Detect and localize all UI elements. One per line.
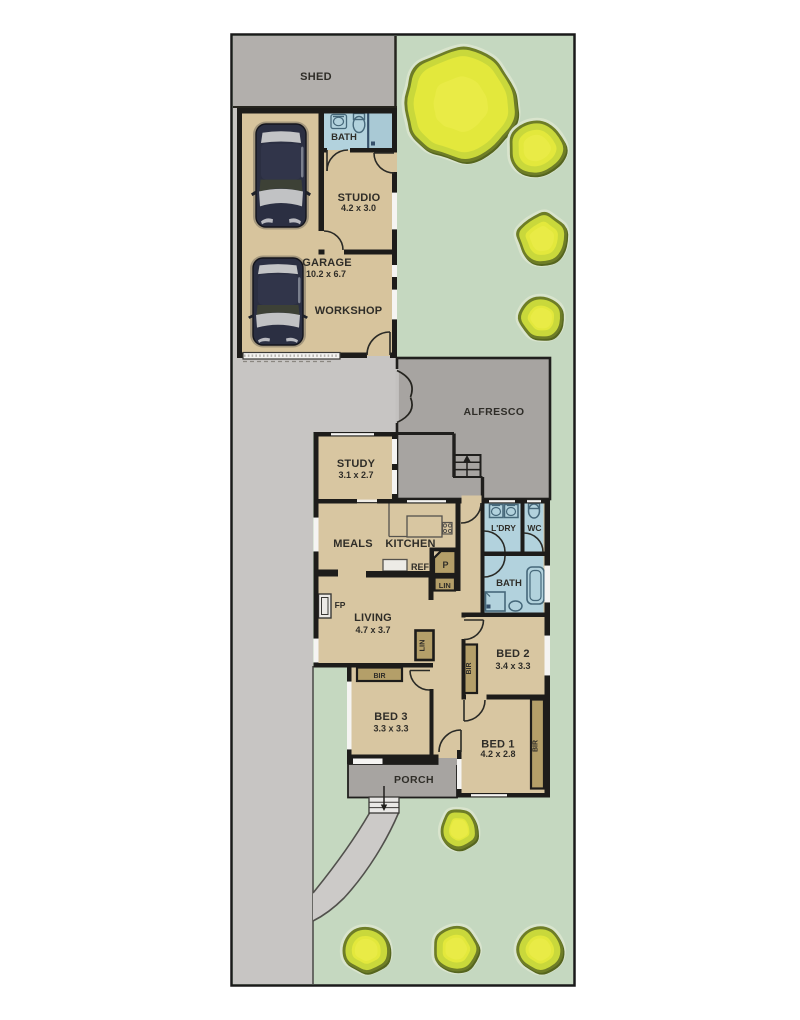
svg-text:LIN: LIN: [417, 639, 426, 651]
svg-text:FP: FP: [335, 600, 346, 610]
svg-text:REF: REF: [411, 562, 430, 572]
svg-text:4.2 x 3.0: 4.2 x 3.0: [341, 203, 376, 213]
svg-text:SHED: SHED: [300, 71, 332, 83]
svg-text:GARAGE: GARAGE: [302, 257, 351, 269]
svg-text:BIR: BIR: [532, 740, 539, 752]
svg-text:BIR: BIR: [373, 673, 385, 680]
svg-text:WC: WC: [527, 523, 541, 533]
svg-text:P: P: [442, 560, 448, 570]
svg-text:10.2 x 6.7: 10.2 x 6.7: [306, 269, 346, 279]
svg-text:BATH: BATH: [496, 578, 522, 589]
svg-text:3.4 x 3.3: 3.4 x 3.3: [495, 661, 530, 671]
svg-text:PORCH: PORCH: [394, 774, 434, 786]
svg-text:3.1 x 2.7: 3.1 x 2.7: [338, 470, 373, 480]
svg-text:3.3 x 3.3: 3.3 x 3.3: [373, 724, 408, 734]
svg-text:4.7 x 3.7: 4.7 x 3.7: [355, 625, 390, 635]
svg-text:BIR: BIR: [466, 662, 473, 674]
svg-text:BED 2: BED 2: [496, 648, 529, 660]
svg-text:WORKSHOP: WORKSHOP: [315, 305, 383, 317]
svg-text:BED 3: BED 3: [374, 711, 407, 723]
svg-text:KITCHEN: KITCHEN: [385, 538, 435, 550]
svg-text:L'DRY: L'DRY: [491, 523, 516, 533]
svg-text:MEALS: MEALS: [333, 538, 373, 550]
svg-text:LIVING: LIVING: [354, 612, 392, 624]
svg-text:BATH: BATH: [331, 132, 357, 143]
svg-text:ALFRESCO: ALFRESCO: [464, 406, 525, 418]
svg-text:LIN: LIN: [439, 581, 451, 590]
svg-text:STUDY: STUDY: [337, 458, 376, 470]
svg-text:4.2 x 2.8: 4.2 x 2.8: [480, 749, 515, 759]
